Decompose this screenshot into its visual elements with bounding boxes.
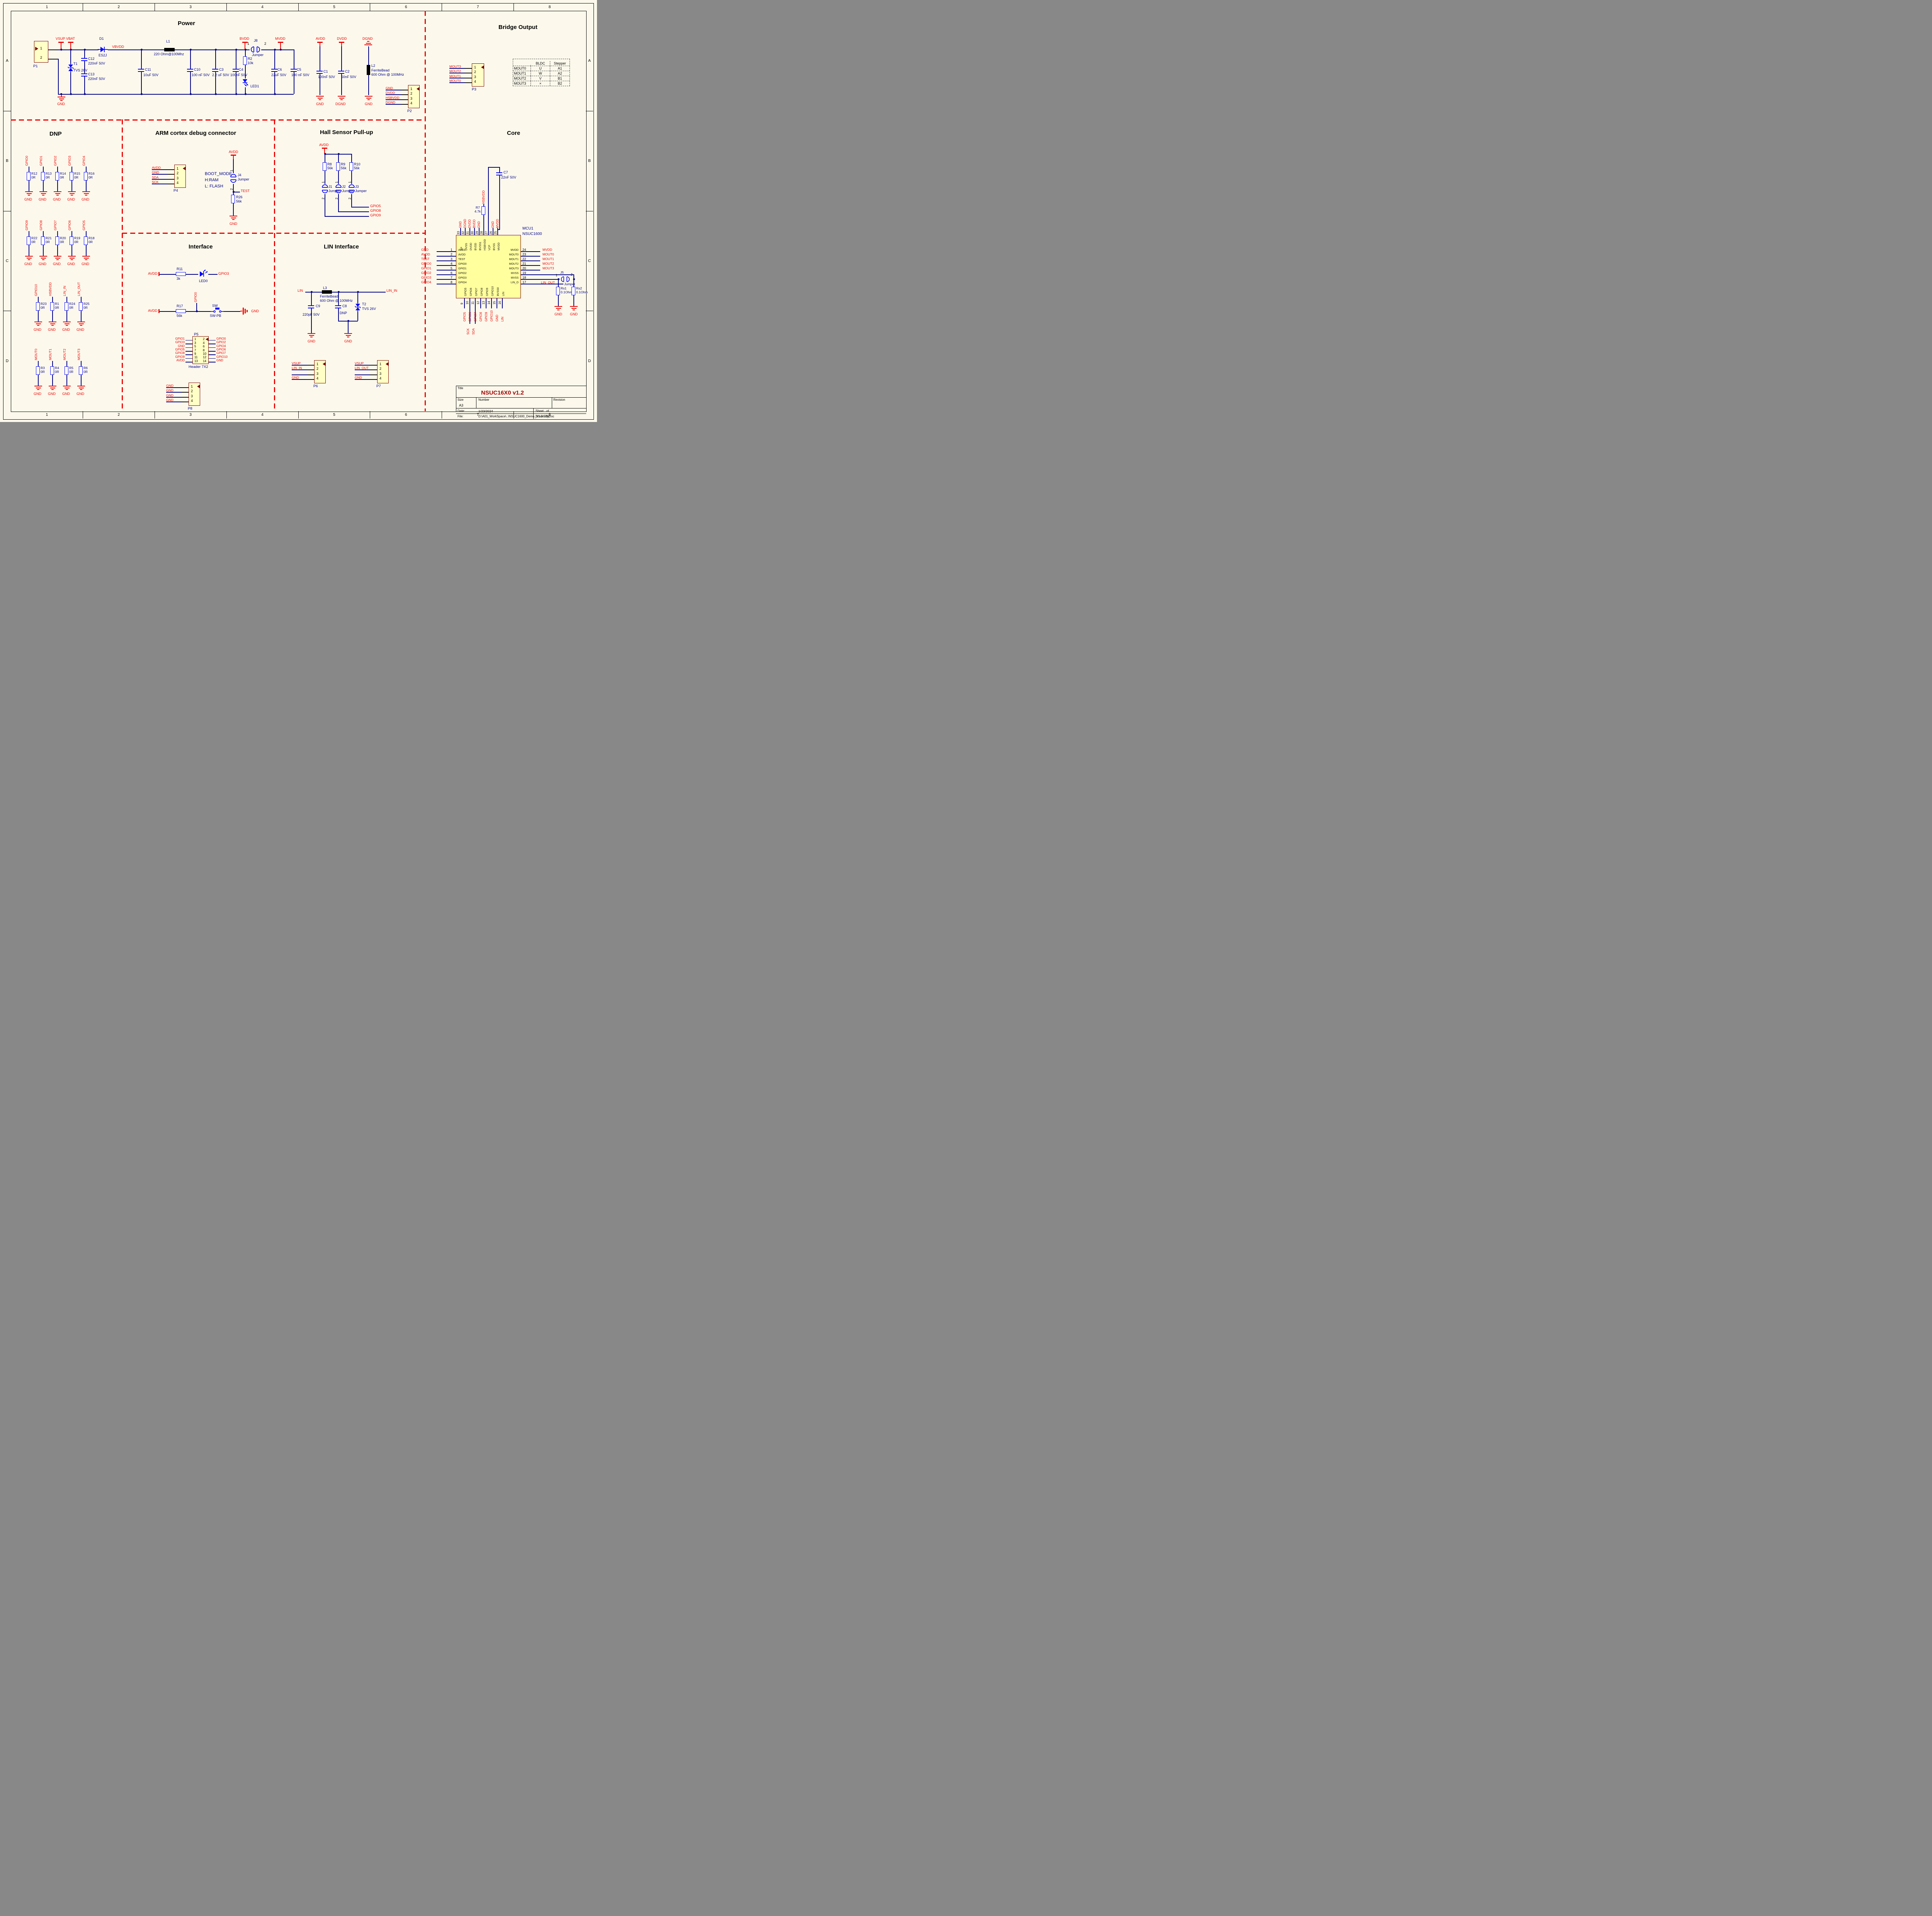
ruler-label: B [6,159,9,163]
designator: J8 [254,39,258,43]
wire [71,167,72,172]
wire [338,194,339,211]
pin1-marker [386,362,389,366]
ruler-cell: C [3,211,11,311]
pin-number: 9 [194,352,196,356]
net-label-dvdd: DVDD [337,37,347,41]
header-pin-row: AVDD 13 14 GND [167,359,236,363]
net-label: GPIO0 [421,262,431,265]
resistor-icon[interactable] [481,206,485,215]
value: 600 Ohm @ 100MHz [371,73,404,77]
ruler-cell: 2 [83,3,155,11]
pin-name-row: MVSS [493,271,519,276]
gnd-symbol [68,256,76,260]
pin-name-row: MOUT2 [493,262,519,267]
ruler-cell: D [3,311,11,411]
resistor-icon[interactable] [55,237,59,245]
net-label-gnd: GND [82,262,89,266]
designator: R23 [41,302,47,306]
wire [209,362,216,362]
ferrite-bead-icon[interactable] [322,290,332,294]
pin-number: 2 [264,42,266,46]
wire [66,311,67,322]
mcu-pin-row: 20MOUT3 [521,267,583,271]
designator: R12 [31,172,37,175]
mcu-pin-row: 18 [521,276,583,281]
wire [465,228,466,235]
table-cell: MOUT3 [513,81,531,86]
gnd-symbol [63,322,71,326]
ruler-label: 3 [189,413,192,417]
resistor-icon[interactable] [27,237,31,245]
dnp-resistor-cell: GPIO6 R19 0R GND [66,213,80,271]
table-cell: U [531,66,550,71]
value: 0R [83,306,88,310]
net-label: HSBVDD [48,282,52,296]
designator: R8 [327,162,332,166]
table-cell: B2 [550,81,570,86]
net-label-gnd: GND [344,339,352,343]
wire [160,274,176,275]
designator: L2 [371,64,375,68]
gnd-symbol [338,96,345,100]
net-label: GPIO0 [25,156,29,166]
designator: LED0 [199,279,208,283]
pin-number: 31 [466,231,469,235]
pin-name: MVSS [511,272,519,275]
pin-number: 1 [348,181,352,183]
wire [488,167,489,228]
net-label-gnd: GND [34,328,41,332]
tvs-diode-icon[interactable] [355,303,361,311]
wire [108,49,164,50]
net-label: GND [167,344,185,348]
pin1-marker [197,385,200,388]
value: 0.1Ohm [561,290,572,294]
designator: R3 [41,366,45,370]
net-label-gnd: GND [67,197,75,201]
ferrite-bead-icon[interactable] [164,48,175,51]
wire [29,231,29,237]
wire [185,344,192,344]
wire [305,292,322,293]
resistor-icon[interactable] [84,172,88,180]
net-label: GPIO8 [370,209,381,213]
wire [437,260,456,261]
mcu-pin-row: 19 [521,271,583,276]
jumper-icon[interactable] [230,173,236,184]
net-label-sck: SCK [466,328,470,335]
sheet-title: NSUC16X0 v1.2 [481,390,524,396]
wire [474,228,475,235]
resistor-icon[interactable] [55,172,59,180]
gnd-symbol [230,216,237,220]
ruler-cell: B [586,111,593,211]
net-label-sda: SDA [472,328,475,335]
net-label-test: TEST [241,189,250,193]
pin-name: LIN_O [511,281,519,284]
push-button-icon[interactable] [211,307,224,313]
resistor-icon[interactable] [176,272,186,276]
net-label: LIN_OUT [77,282,81,296]
net-label: GPIO5 [463,312,466,322]
wire [152,169,174,170]
wire [185,340,192,341]
pin-name: GPIO8 [481,288,483,296]
section-divider [425,11,426,411]
ruler-cell: D [586,311,593,411]
ruler-label: C [588,259,591,263]
table-cell: MOUT2 [513,76,531,81]
value: 0R [31,240,36,244]
value: 56k [236,199,242,203]
net-label: GPIO9 [167,355,185,359]
value: 3k [177,277,180,281]
mout-mapping-table: BLDCStepper MOUT0UA1MOUT1WA2MOUT2VB1MOUT… [513,59,570,86]
wire [475,308,476,324]
pin-number: 23 [522,252,526,256]
designator: R4 [55,366,59,370]
wire [386,104,408,105]
diode-icon[interactable] [98,46,108,53]
net-label: GPIO2 [53,156,57,166]
value: 2.2 uF 50V [212,73,229,77]
dnp-resistor-cell: GPIO5 R18 0R GND [80,213,95,271]
net-label-gnd: GND [82,197,89,201]
net-label: GPIO1 [39,156,43,166]
value: 0R [69,306,73,310]
pin-number: 33 [457,231,460,235]
wire [351,207,369,208]
net-label-gnd: GND [62,392,70,396]
net-label: GND [216,359,223,362]
pin-number: 4 [316,376,318,380]
wire [215,72,216,94]
net-label-gnd: GND [77,392,84,396]
wire [573,295,574,306]
net-label: GPIO5 [167,348,185,351]
net-label: GPIO3 [68,156,71,166]
resistor-icon[interactable] [50,302,54,311]
wire [48,59,58,60]
net-label: GPIO5 [370,204,381,208]
resistor-icon[interactable] [79,302,83,311]
resistor-icon[interactable] [41,237,45,245]
gnd-symbol [77,386,85,390]
dnp-resistor-cell: LIN_OUT R25 0R GND [75,278,90,336]
number-label: Number [478,398,489,402]
table-cell [513,65,531,66]
schematic-sheet: 12345678 12345678 ABCD ABCD Power Bridge… [0,0,597,422]
mcu-right-pin-names: MVDDMOUT0MOUT1MOUT2MOUT3MVSSMVSSLIN_O [493,248,519,285]
net-label-gnd: GND [53,197,61,201]
wire [185,358,192,359]
net-label-gnd: GND [230,222,237,226]
wire [66,361,67,366]
wire [338,211,369,212]
net-label-gnd: GND [34,392,41,396]
designator: C2 [345,70,350,73]
designator: J1 [328,185,332,189]
designator: C11 [145,68,151,71]
tvs-diode-icon[interactable] [68,64,74,72]
value: 10k [248,61,253,65]
value: SW-PB [210,314,221,318]
resistor-icon[interactable] [323,162,327,171]
pin-number: 1 [191,385,193,388]
dnp-resistor-cell: GPIO10 R23 0R GND [32,278,47,336]
wire [84,61,85,73]
pin-name-row: MVDD [493,248,519,253]
designator: C7 [503,170,508,174]
resistor-icon[interactable] [70,172,73,180]
connector-p5[interactable]: P5 GPIO1 1 2 GPIO0 GPIO3 3 4 GPIO2 GND 5… [167,338,236,363]
net-label-lin-in: LIN_IN [386,289,397,293]
pin-name: GPIO6 [470,288,473,296]
net-label: GPIO9 [25,220,29,230]
wire [469,228,470,235]
net-label: MOUT2 [63,349,66,360]
table-cell: BLDC [531,61,550,66]
power-flag-stem [233,155,234,159]
dnp-resistor-cell: GPIO0 R12 0R GND [23,148,37,206]
pin-number: 21 [522,262,526,265]
wire [84,49,85,58]
resistor-icon[interactable] [571,287,575,295]
gnd-symbol [77,322,85,326]
led-icon[interactable] [241,78,250,88]
resistor-icon[interactable] [556,287,560,295]
wire [469,298,470,308]
boot-mode-note: BOOT_MODE [205,172,232,176]
dnp-resistor-cell: MOUT0 R3 0R GND [32,342,47,400]
resistor-icon[interactable] [349,162,353,171]
resistor-icon[interactable] [79,366,83,375]
wire [292,365,314,366]
resistor-icon[interactable] [50,366,54,375]
designator: P3 [472,87,476,92]
table-cell: A2 [550,71,570,76]
gnd-symbol [63,386,71,390]
wire [437,265,456,266]
net-label-avdd: AVDD [148,272,157,276]
mcu-top-pins: GND 33 EP DGND 32 DVSS DVDD 31 DVDD BVDD… [458,211,500,235]
resistor-icon[interactable] [84,237,88,245]
net-label: BVDD [473,220,476,228]
wire [70,72,71,94]
ruler-label: D [588,359,591,363]
pin-number: 2 [203,337,204,341]
pin-name-row: MOUT3 [493,267,519,271]
wire [81,297,82,302]
pin-number: 16 [498,301,502,305]
pin-number: 3 [316,372,318,376]
power-flag-stem [341,43,342,46]
dnp-row-2: GPIO9 R22 0R GND GPIO8 R21 0R GND GPIO7 … [23,213,95,271]
section-divider [122,233,425,234]
designator: R17 [177,304,183,308]
net-label: GPIO8 [479,312,483,322]
table-row: MOUT1WA2 [513,71,570,76]
designator: C8 [342,304,347,308]
wire [475,298,476,308]
wire [498,229,500,230]
wire [486,298,486,308]
net-label: DVDD [468,219,471,228]
wire [66,375,67,386]
wire [43,167,44,172]
pin-name-row: LIN_O [493,281,519,285]
pin-number: 10 [466,301,469,305]
wire [38,361,39,366]
mcu-pin-col: LIN 16 LIN [500,298,505,337]
resistor-icon[interactable] [243,56,247,65]
pin-number: 2 [379,367,381,371]
pin-name: GPIO2 [458,272,466,275]
wire [355,374,377,375]
wire [449,68,472,69]
wire [341,46,342,71]
dnp-row-1: GPIO0 R12 0R GND GPIO1 R13 0R GND GPIO2 … [23,148,95,206]
designator: J2 [342,185,346,189]
pin-number: 4 [451,262,452,265]
ruler-label: 6 [405,5,407,9]
resistor-icon[interactable] [41,172,45,180]
wire [29,167,29,172]
net-label: GND [477,221,481,228]
gnd-symbol [49,386,56,390]
wire [292,374,314,375]
wire [348,321,349,333]
pin-name: GPIO1 [458,267,466,270]
resistor-icon[interactable] [65,302,68,311]
pin-name: GPIO0 [458,263,466,265]
designator: Rs2 [576,286,582,290]
wire [166,387,189,388]
designator: P2 [407,109,412,113]
net-label: GPIO10 [216,355,228,359]
net-label: GPIO4 [82,156,86,166]
ruler-label: 5 [333,5,335,9]
value: Jumper [342,189,354,193]
section-title-power: Power [178,20,195,27]
ferrite-bead-icon[interactable] [367,65,370,75]
net-label: MVDD [496,219,499,228]
led-icon[interactable] [198,270,208,279]
wire [236,49,236,69]
net-label-gnd: GND [48,392,56,396]
resistor-icon[interactable] [65,366,68,375]
resistor-icon[interactable] [36,302,40,311]
wire [38,375,39,386]
value: 220nF 50V [88,77,105,81]
part-name: Header 7X2 [189,365,208,369]
net-label: TEST [421,257,430,261]
mcu-right-pins: 24MVDD23MOUT022MOUT121MOUT220MOUT3191817 [521,248,583,285]
size-label: Size [457,398,464,402]
ruler-label: C [6,259,9,263]
pin-name: GPIO3 [458,277,466,279]
wire [245,65,246,78]
net-label: MOUT0 [34,349,38,360]
net-label-gnd: GND [554,312,562,316]
gnd-symbol [39,256,47,260]
wire [58,94,294,95]
pin-number: 11 [194,356,197,359]
pin1-marker [481,65,484,69]
pin-number: 13 [482,301,485,305]
designator: R14 [60,172,66,175]
resistor-icon[interactable] [176,309,186,313]
pin-number: 10 [203,352,206,356]
ruler-label: 5 [333,413,335,417]
wire [86,167,87,172]
section-title-bridge: Bridge Output [498,24,537,31]
resistor-icon[interactable] [336,162,340,171]
resistor-icon[interactable] [70,237,73,245]
designator: R5 [69,366,73,370]
value: 0R [74,240,78,244]
jumper-icon[interactable] [322,184,328,194]
value: FerriteBead [371,68,389,72]
ruler-label: 2 [118,413,120,417]
value: 0R [69,370,73,374]
net-label: MOUT3 [543,266,554,270]
pin-name: MOUT2 [509,263,519,265]
wire [152,174,174,175]
net-label: GPIO1 [421,266,431,270]
pin-number: 1 [451,248,452,252]
net-label: GPIO6 [216,348,226,351]
wire [224,311,240,312]
value: 0R [83,370,88,374]
resistor-icon[interactable] [231,195,235,203]
value: Jumper [328,189,340,193]
wire [386,94,408,95]
pin-number: 4 [177,181,179,185]
net-label: GPIO3 [421,276,431,279]
pin-number: 3 [474,75,476,79]
pin-number: 2 [474,70,476,74]
net-label: GND [491,221,495,228]
wire [341,74,342,95]
net-label: GPIO7 [216,351,226,355]
jumper-icon[interactable] [250,46,261,53]
wire [338,292,339,305]
value: 0.1Ohm [576,290,588,294]
net-label-gnd: GND [24,262,32,266]
gnd-symbol [344,333,352,337]
designator: D1 [99,37,104,41]
wire [71,180,72,191]
dnp-resistor-cell: MOUT3 R6 0R GND [75,342,90,400]
net-label: GPIO9 [485,312,488,322]
pin-name: MVSS [511,277,519,279]
gnd-symbol [570,306,578,310]
resistor-icon[interactable] [36,366,40,375]
pin-number: 28 [480,231,483,235]
pin-number: 30 [471,231,474,235]
net-label-vsup: VSUP [56,37,65,41]
net-label: GPIO1 [167,337,185,340]
resistor-icon[interactable] [27,172,31,180]
wire [190,72,191,94]
wire [185,354,192,355]
pin-number: 3 [410,97,412,100]
wire [493,228,493,235]
net-label-lin: LIN [298,289,303,293]
value: 0R [41,370,45,374]
